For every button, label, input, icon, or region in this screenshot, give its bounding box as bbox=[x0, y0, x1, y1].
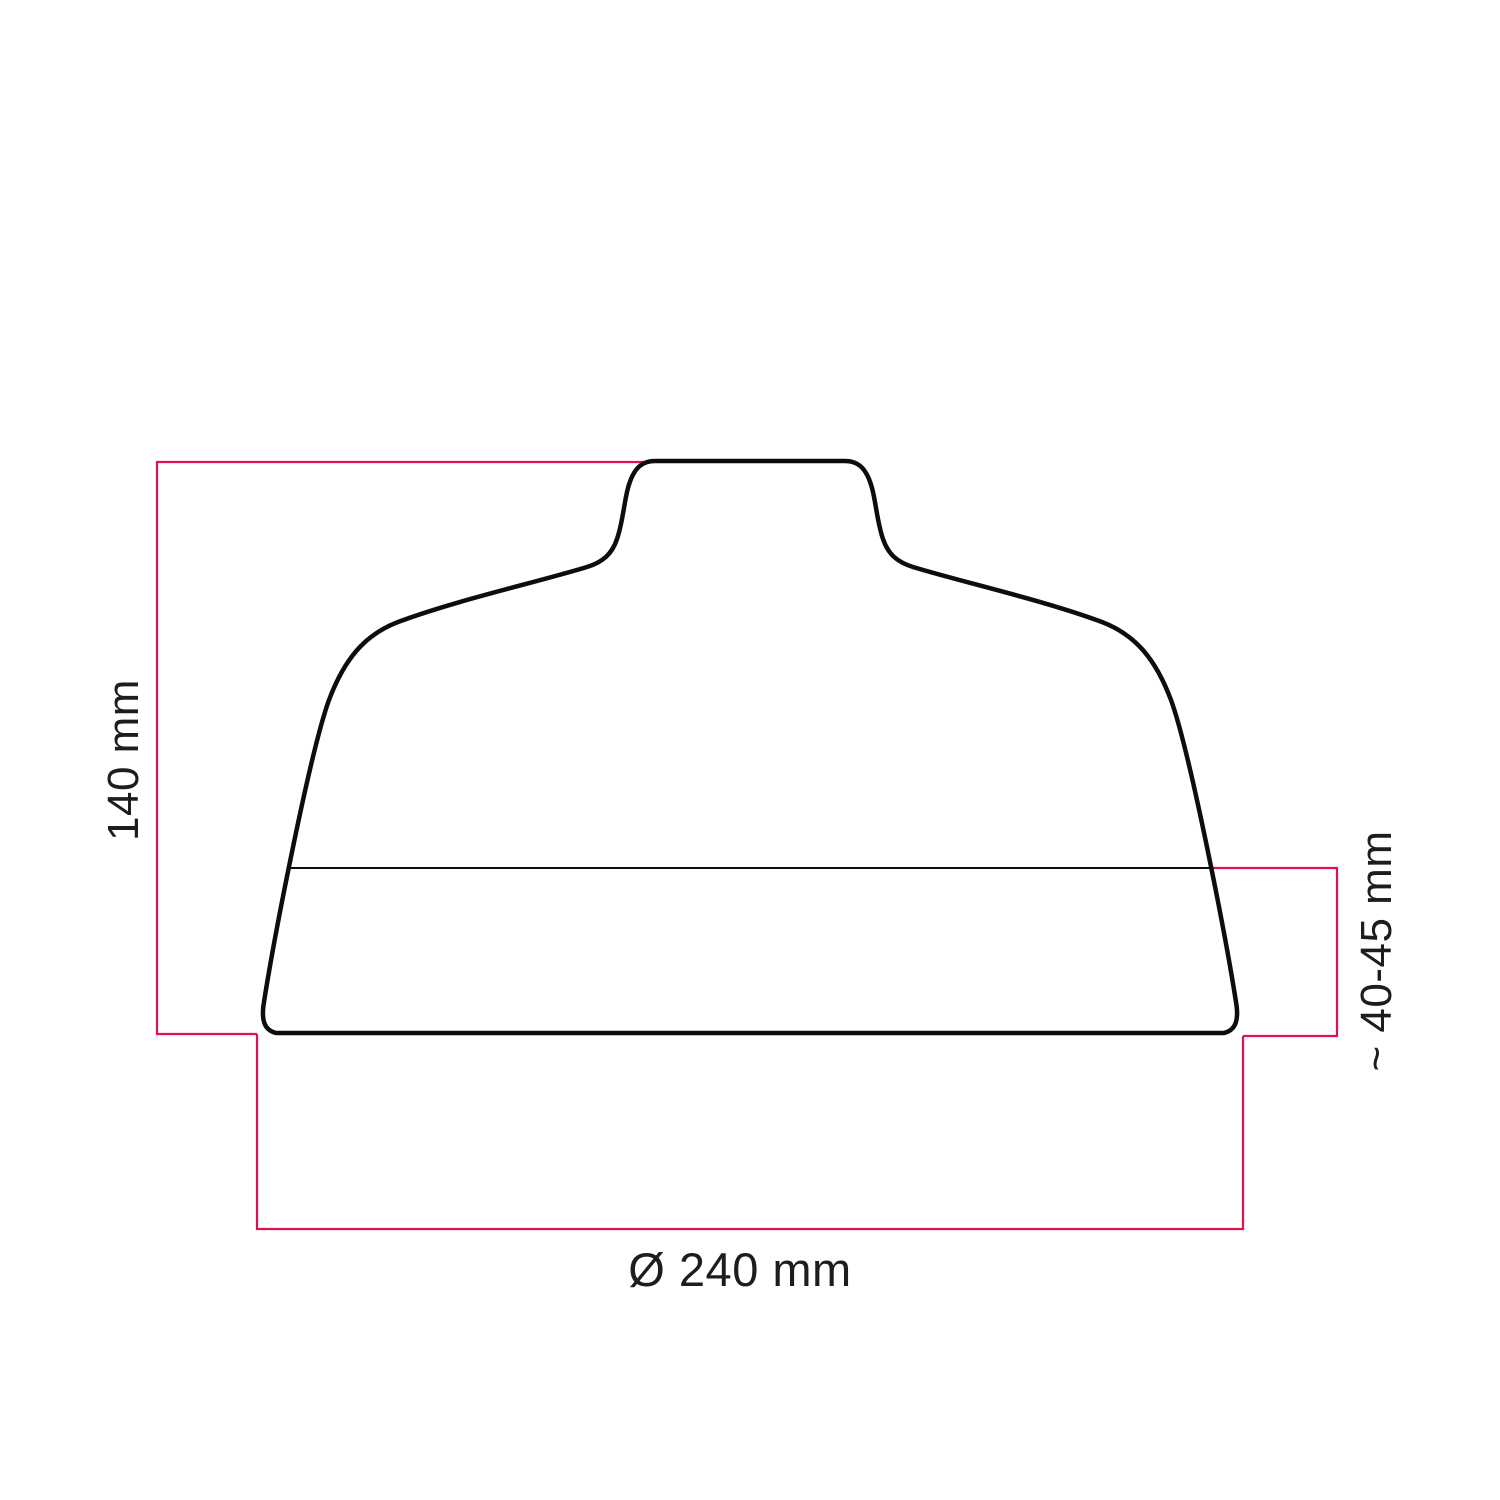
height-dimension-lines bbox=[157, 462, 648, 1034]
neck-height-dimension-label: ~ 40-45 mm bbox=[1352, 831, 1401, 1072]
diameter-dimension-lines bbox=[257, 1034, 1243, 1229]
diameter-dimension-label: Ø 240 mm bbox=[628, 1243, 851, 1296]
neck-height-dimension-lines bbox=[1211, 868, 1337, 1036]
lampshade-outline bbox=[263, 461, 1237, 1033]
lampshade-dimension-diagram: 140 mm ~ 40-45 mm Ø 240 mm bbox=[0, 0, 1500, 1500]
diagram-canvas: 140 mm ~ 40-45 mm Ø 240 mm bbox=[0, 0, 1500, 1500]
height-dimension-label: 140 mm bbox=[99, 679, 148, 841]
